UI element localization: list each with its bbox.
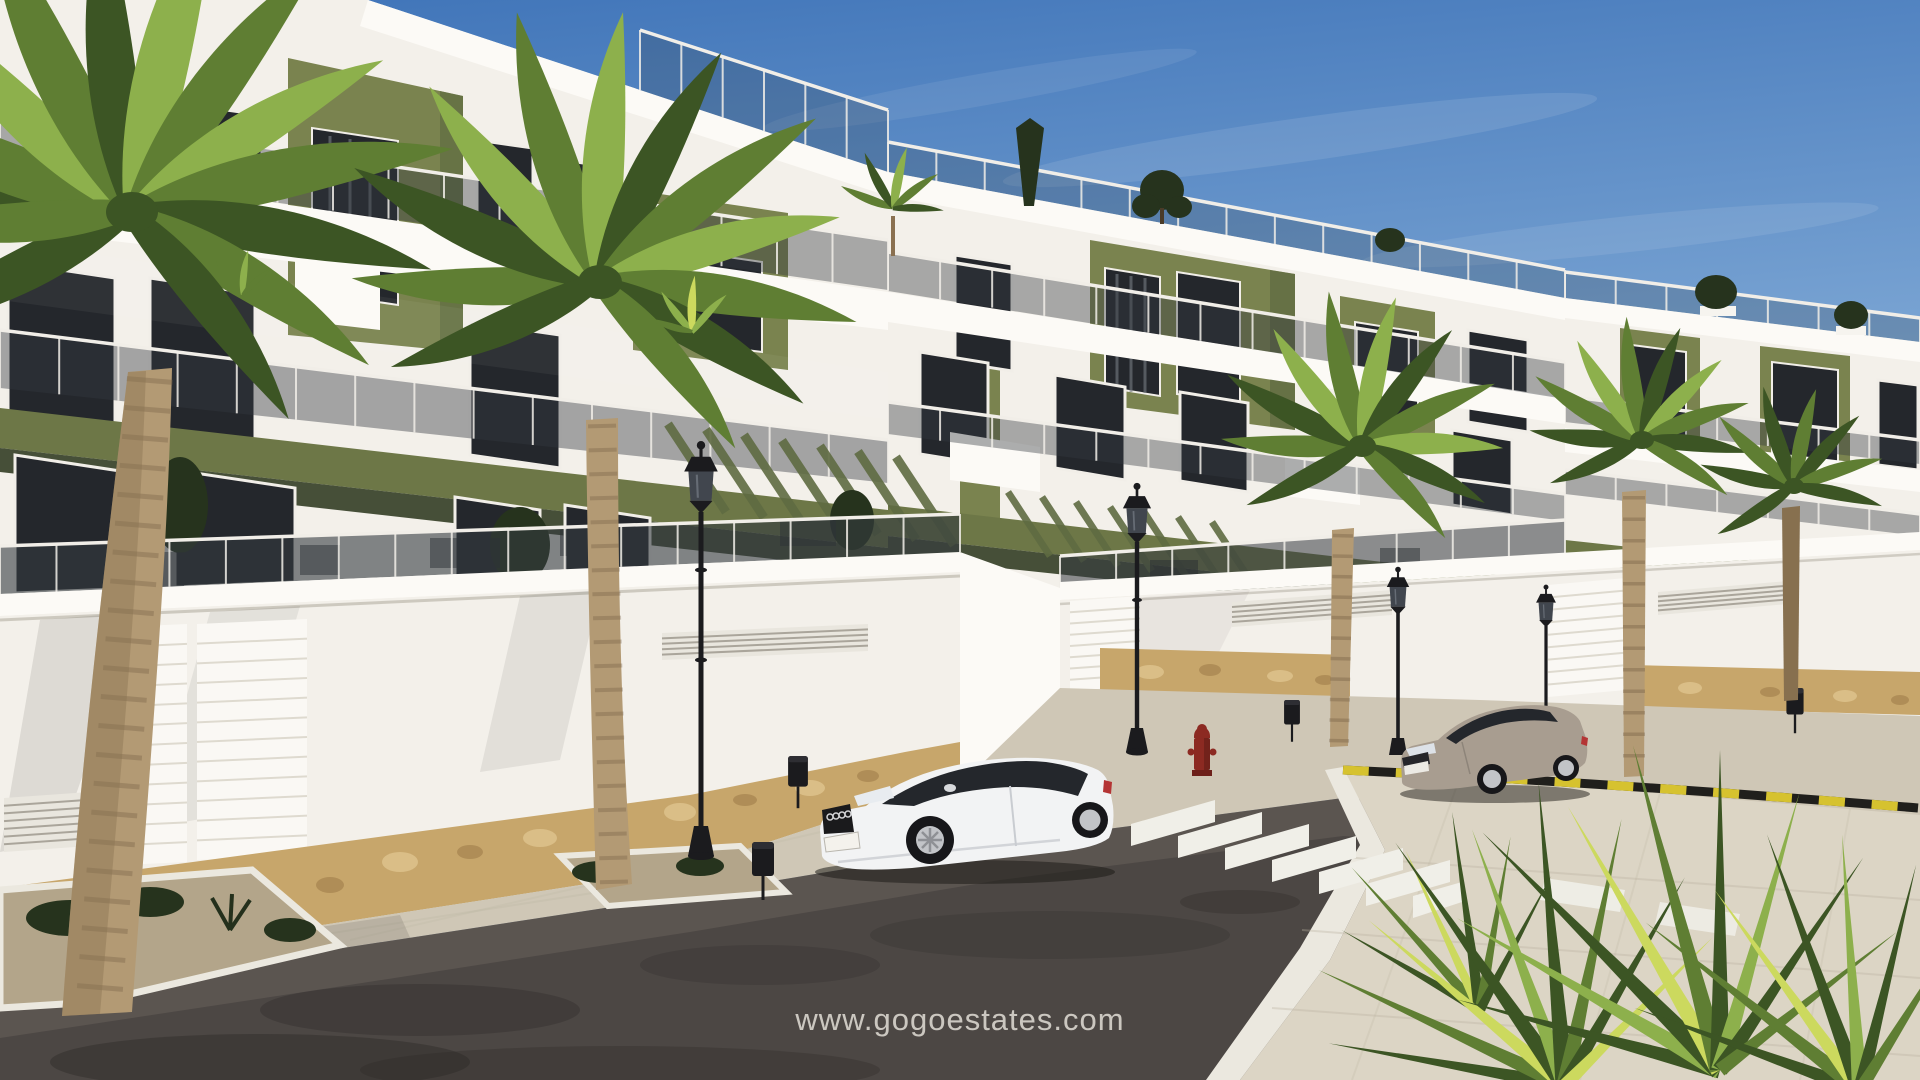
scene bbox=[0, 0, 1920, 1080]
property-photo: www.gogoestates.com bbox=[0, 0, 1920, 1080]
garage-door bbox=[1548, 578, 1626, 697]
watermark-text: www.gogoestates.com bbox=[795, 1002, 1124, 1038]
garage-door bbox=[197, 619, 307, 860]
